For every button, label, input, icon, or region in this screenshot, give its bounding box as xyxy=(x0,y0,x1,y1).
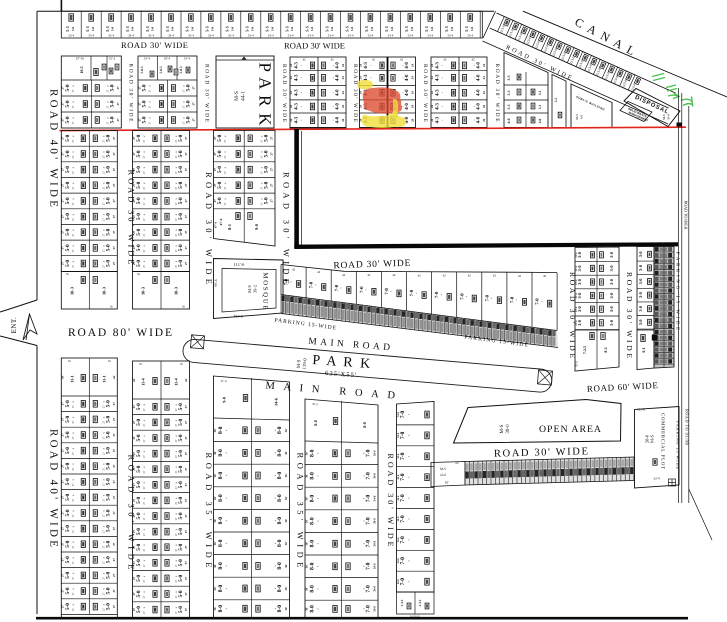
svg-text:5-0: 5-0 xyxy=(136,559,142,566)
svg-text:33-4: 33-4 xyxy=(208,34,214,38)
svg-text:5-0.5: 5-0.5 xyxy=(140,66,144,73)
svg-text:27: 27 xyxy=(184,498,188,502)
svg-text:5-0: 5-0 xyxy=(106,213,112,220)
svg-text:33-4: 33-4 xyxy=(188,34,194,38)
svg-text:8-0: 8-0 xyxy=(218,585,224,593)
svg-text:7-2.5: 7-2.5 xyxy=(582,346,587,354)
svg-text:27: 27 xyxy=(112,464,116,468)
svg-text:42: 42 xyxy=(418,273,422,277)
svg-text:42: 42 xyxy=(372,58,376,62)
svg-text:34-6: 34-6 xyxy=(373,518,377,524)
svg-text:4-0: 4-0 xyxy=(507,118,511,123)
svg-text:4-3: 4-3 xyxy=(294,103,300,110)
svg-text:7-0: 7-0 xyxy=(400,494,406,502)
svg-text:5-0: 5-0 xyxy=(106,150,112,157)
svg-text:5-0: 5-0 xyxy=(136,481,142,488)
svg-text:M-S: M-S xyxy=(575,114,579,120)
svg-text:5-0: 5-0 xyxy=(106,134,112,141)
svg-text:5-0: 5-0 xyxy=(106,478,112,485)
svg-text:57'-5: 57'-5 xyxy=(576,361,579,367)
svg-text:4-3: 4-3 xyxy=(435,103,441,110)
svg-text:47'-6: 47'-6 xyxy=(214,221,218,228)
svg-text:4-3: 4-3 xyxy=(294,74,300,81)
svg-text:27: 27 xyxy=(132,420,136,424)
svg-text:5-0: 5-0 xyxy=(263,134,269,141)
svg-text:M-S: M-S xyxy=(247,285,252,293)
svg-text:3-0: 3-0 xyxy=(638,291,643,298)
svg-text:5-0: 5-0 xyxy=(136,465,142,472)
svg-text:34-6: 34-6 xyxy=(373,563,377,569)
svg-text:24: 24 xyxy=(410,105,414,109)
svg-text:27: 27 xyxy=(192,102,196,106)
svg-text:3-3: 3-3 xyxy=(507,90,511,95)
svg-text:27: 27 xyxy=(61,449,65,453)
svg-text:36': 36' xyxy=(213,428,217,432)
svg-text:3-0: 3-0 xyxy=(609,292,614,299)
svg-text:27: 27 xyxy=(192,86,196,90)
svg-text:5-0: 5-0 xyxy=(65,603,71,610)
svg-text:27: 27 xyxy=(61,199,65,203)
svg-text:4-0: 4-0 xyxy=(475,74,481,81)
svg-text:27: 27 xyxy=(61,102,65,106)
svg-text:36': 36' xyxy=(305,496,309,500)
svg-text:5-0: 5-0 xyxy=(65,400,71,407)
svg-text:27: 27 xyxy=(132,530,136,534)
svg-text:27: 27 xyxy=(61,527,65,531)
svg-text:7-0: 7-0 xyxy=(366,472,372,480)
svg-text:5-0: 5-0 xyxy=(65,509,71,516)
svg-text:5-0: 5-0 xyxy=(110,100,116,107)
svg-text:ROAD 30' WIDE: ROAD 30' WIDE xyxy=(422,64,428,123)
svg-text:8-0: 8-0 xyxy=(309,472,315,480)
svg-text:27: 27 xyxy=(116,86,120,90)
svg-text:27: 27 xyxy=(270,152,274,156)
svg-text:32'-2: 32'-2 xyxy=(109,57,116,61)
svg-text:34-6: 34-6 xyxy=(397,495,400,501)
svg-text:3-0: 3-0 xyxy=(638,319,643,326)
svg-text:27: 27 xyxy=(61,433,65,437)
svg-text:5-0: 5-0 xyxy=(65,260,71,267)
svg-text:5-0: 5-0 xyxy=(136,528,142,535)
svg-text:42: 42 xyxy=(331,58,335,62)
svg-text:27: 27 xyxy=(112,605,116,609)
svg-text:27: 27 xyxy=(184,467,188,471)
svg-text:4-0: 4-0 xyxy=(334,116,340,123)
svg-text:5-0: 5-0 xyxy=(106,509,112,516)
svg-text:7-0: 7-0 xyxy=(366,449,372,457)
svg-text:24: 24 xyxy=(289,105,293,109)
svg-text:5-0: 5-0 xyxy=(263,197,269,204)
svg-text:5-0: 5-0 xyxy=(136,497,142,504)
svg-text:5-0: 5-0 xyxy=(178,213,184,220)
svg-text:5-0: 5-0 xyxy=(65,228,71,235)
svg-text:42: 42 xyxy=(317,270,321,274)
svg-text:5-0: 5-0 xyxy=(178,606,184,613)
svg-text:5-0: 5-0 xyxy=(91,26,95,31)
svg-text:5-0: 5-0 xyxy=(136,512,142,519)
svg-text:ROAD TO 91/9R: ROAD TO 91/9R xyxy=(685,409,690,445)
svg-text:27: 27 xyxy=(116,118,120,122)
svg-text:8-0: 8-0 xyxy=(218,449,224,457)
svg-text:9-0: 9-0 xyxy=(254,223,259,230)
svg-text:27: 27 xyxy=(132,514,136,518)
svg-text:ENT.: ENT. xyxy=(10,317,18,334)
svg-text:24: 24 xyxy=(430,91,434,95)
svg-text:4-0: 4-0 xyxy=(404,103,410,110)
svg-text:42: 42 xyxy=(303,58,307,62)
svg-text:24: 24 xyxy=(341,76,345,80)
svg-text:27: 27 xyxy=(132,561,136,565)
svg-text:36': 36' xyxy=(213,473,217,477)
svg-text:7-0: 7-0 xyxy=(400,452,406,460)
svg-text:M-S: M-S xyxy=(499,424,505,433)
svg-text:34-6: 34-6 xyxy=(373,606,377,612)
svg-text:28-0: 28-0 xyxy=(645,434,650,443)
svg-text:3-0: 3-0 xyxy=(609,319,614,326)
svg-text:34-6: 34-6 xyxy=(397,453,400,459)
svg-text:8-0: 8-0 xyxy=(277,426,283,434)
svg-text:45'-5: 45'-5 xyxy=(312,402,319,406)
svg-text:10-3: 10-3 xyxy=(69,286,74,295)
svg-text:5-5: 5-5 xyxy=(165,26,170,32)
svg-text:4-0: 4-0 xyxy=(404,74,410,81)
svg-text:27: 27 xyxy=(270,199,274,203)
svg-text:5-0: 5-0 xyxy=(106,525,112,532)
svg-text:34-6: 34-6 xyxy=(373,473,377,479)
svg-text:5-0: 5-0 xyxy=(65,431,71,438)
svg-text:ROAD 40' WIDE: ROAD 40' WIDE xyxy=(48,89,60,207)
svg-text:M-S: M-S xyxy=(662,114,666,120)
svg-text:5-0: 5-0 xyxy=(106,244,112,251)
svg-text:5-5: 5-5 xyxy=(65,26,70,32)
svg-text:24: 24 xyxy=(341,63,345,67)
svg-text:8-0: 8-0 xyxy=(277,449,283,457)
svg-text:5-0: 5-0 xyxy=(65,447,71,454)
svg-text:27: 27 xyxy=(61,230,65,234)
svg-text:27: 27 xyxy=(132,483,136,487)
svg-text:36': 36' xyxy=(213,586,217,590)
svg-text:36': 36' xyxy=(305,519,309,523)
svg-text:5-0: 5-0 xyxy=(65,572,71,579)
svg-text:5-0: 5-0 xyxy=(410,26,414,31)
svg-text:34-6: 34-6 xyxy=(397,558,400,564)
svg-text:23'-6: 23'-6 xyxy=(575,265,578,271)
svg-text:5-0: 5-0 xyxy=(65,494,71,501)
svg-text:5-0: 5-0 xyxy=(71,26,75,31)
svg-text:27: 27 xyxy=(132,592,136,596)
svg-text:7-0: 7-0 xyxy=(366,605,372,613)
svg-text:3-0: 3-0 xyxy=(609,278,614,285)
svg-text:4-0: 4-0 xyxy=(404,89,410,96)
svg-text:27: 27 xyxy=(112,589,116,593)
svg-text:4-0: 4-0 xyxy=(334,74,340,81)
svg-text:5-0: 5-0 xyxy=(136,228,142,235)
svg-text:101'-6: 101'-6 xyxy=(233,314,243,318)
svg-text:67'-10: 67'-10 xyxy=(76,57,84,61)
svg-text:111'-6: 111'-6 xyxy=(234,262,246,267)
svg-text:27: 27 xyxy=(61,495,65,499)
svg-text:5-5: 5-5 xyxy=(384,26,389,32)
svg-text:42: 42 xyxy=(367,273,371,277)
svg-text:27: 27 xyxy=(184,215,188,219)
svg-text:7-0: 7-0 xyxy=(366,517,372,525)
svg-text:5-0: 5-0 xyxy=(106,181,112,188)
svg-text:33-4: 33-4 xyxy=(268,34,274,38)
svg-text:62'-0: 62'-0 xyxy=(654,476,661,480)
svg-text:5-0: 5-0 xyxy=(263,150,269,157)
svg-text:4-3: 4-3 xyxy=(435,62,441,69)
svg-text:5-3.5: 5-3.5 xyxy=(418,599,422,606)
svg-text:8-0: 8-0 xyxy=(309,605,315,613)
svg-text:27: 27 xyxy=(61,183,65,187)
svg-text:24: 24 xyxy=(341,91,345,95)
svg-text:24: 24 xyxy=(289,118,293,122)
svg-text:5-0: 5-0 xyxy=(65,84,71,91)
svg-text:27: 27 xyxy=(184,608,188,612)
svg-text:36': 36' xyxy=(305,564,309,568)
svg-text:27: 27 xyxy=(61,511,65,515)
svg-text:27: 27 xyxy=(213,136,217,140)
svg-text:27: 27 xyxy=(61,86,65,90)
svg-text:3-0: 3-0 xyxy=(638,278,643,285)
svg-text:27: 27 xyxy=(184,405,188,409)
svg-text:27: 27 xyxy=(184,183,188,187)
svg-text:10-3: 10-3 xyxy=(174,286,179,295)
svg-text:10-3: 10-3 xyxy=(101,286,106,295)
svg-text:27: 27 xyxy=(132,246,136,250)
svg-text:5-0: 5-0 xyxy=(178,419,184,426)
svg-text:33-4: 33-4 xyxy=(427,34,433,38)
svg-text:27: 27 xyxy=(184,452,188,456)
svg-text:4-3: 4-3 xyxy=(294,89,300,96)
svg-text:24: 24 xyxy=(482,91,486,95)
svg-text:8-0: 8-0 xyxy=(309,562,315,570)
svg-text:27: 27 xyxy=(184,136,188,140)
svg-text:42: 42 xyxy=(493,274,497,278)
svg-text:27: 27 xyxy=(112,542,116,546)
svg-text:4-0: 4-0 xyxy=(334,89,340,96)
svg-text:5-0: 5-0 xyxy=(106,556,112,563)
svg-text:60': 60' xyxy=(185,378,188,382)
svg-text:5-0: 5-0 xyxy=(178,260,184,267)
svg-text:5-0: 5-0 xyxy=(171,26,175,31)
svg-text:5-0: 5-0 xyxy=(370,26,374,31)
svg-text:27: 27 xyxy=(112,511,116,515)
svg-text:ROAD 30' WIDE: ROAD 30' WIDE xyxy=(281,64,287,123)
svg-text:5-0: 5-0 xyxy=(290,26,294,31)
svg-text:5-0: 5-0 xyxy=(106,572,112,579)
svg-text:24: 24 xyxy=(359,91,363,95)
svg-text:27: 27 xyxy=(61,168,65,172)
svg-text:34-6: 34-6 xyxy=(373,450,377,456)
svg-text:5-0: 5-0 xyxy=(136,590,142,597)
svg-text:24: 24 xyxy=(289,76,293,80)
svg-text:11-1: 11-1 xyxy=(69,375,74,382)
svg-text:5-0: 5-0 xyxy=(350,26,354,31)
svg-text:5-0: 5-0 xyxy=(178,134,184,141)
svg-text:5-0: 5-0 xyxy=(178,244,184,251)
svg-text:27: 27 xyxy=(184,592,188,596)
svg-text:ROAD 30' WIDE: ROAD 30' WIDE xyxy=(121,40,188,50)
svg-text:27: 27 xyxy=(132,230,136,234)
svg-text:24: 24 xyxy=(430,63,434,67)
svg-text:5-0: 5-0 xyxy=(151,26,155,31)
svg-text:7-0: 7-0 xyxy=(400,431,406,439)
svg-text:27: 27 xyxy=(112,417,116,421)
svg-text:5-0: 5-0 xyxy=(178,403,184,410)
svg-text:5-0: 5-0 xyxy=(136,450,142,457)
svg-text:42: 42 xyxy=(400,58,404,62)
svg-text:4-3: 4-3 xyxy=(363,62,369,69)
svg-text:5-0: 5-0 xyxy=(178,228,184,235)
svg-text:60': 60' xyxy=(113,375,116,379)
svg-text:42: 42 xyxy=(472,58,476,62)
svg-text:3-0: 3-0 xyxy=(609,305,614,312)
svg-text:27: 27 xyxy=(61,417,65,421)
svg-text:33-4: 33-4 xyxy=(407,34,413,38)
svg-text:5-0: 5-0 xyxy=(65,213,71,220)
svg-text:ROAD 30' WIDE: ROAD 30' WIDE xyxy=(128,64,134,123)
svg-text:5-0: 5-0 xyxy=(178,481,184,488)
svg-text:34-6: 34-6 xyxy=(397,516,400,522)
svg-text:5-0: 5-0 xyxy=(390,26,394,31)
svg-text:5-5: 5-5 xyxy=(324,26,329,32)
svg-text:42: 42 xyxy=(468,274,472,278)
svg-text:24: 24 xyxy=(289,91,293,95)
svg-text:4-3: 4-3 xyxy=(435,89,441,96)
svg-text:5-0: 5-0 xyxy=(178,497,184,504)
svg-text:5-0: 5-0 xyxy=(430,26,434,31)
svg-text:8-0: 8-0 xyxy=(277,585,283,593)
svg-text:27: 27 xyxy=(213,152,217,156)
svg-text:5-0: 5-0 xyxy=(106,540,112,547)
svg-text:5-0: 5-0 xyxy=(110,84,116,91)
svg-text:5-0: 5-0 xyxy=(65,416,71,423)
svg-text:ROAD 40' WIDE: ROAD 40' WIDE xyxy=(48,429,60,547)
svg-text:33-4: 33-4 xyxy=(288,34,294,38)
svg-text:36': 36' xyxy=(284,473,288,477)
svg-text:4-3: 4-3 xyxy=(294,62,300,69)
svg-text:5-5: 5-5 xyxy=(554,97,558,102)
svg-text:5-0: 5-0 xyxy=(136,434,142,441)
svg-text:5-0: 5-0 xyxy=(136,403,142,410)
svg-text:5-0: 5-0 xyxy=(230,26,234,31)
svg-text:27: 27 xyxy=(112,168,116,172)
svg-text:8-0: 8-0 xyxy=(218,494,224,502)
svg-text:42: 42 xyxy=(443,273,447,277)
svg-text:5-0: 5-0 xyxy=(217,134,223,141)
svg-text:10-0: 10-0 xyxy=(667,114,671,120)
svg-text:8-0: 8-0 xyxy=(362,422,367,428)
svg-text:27: 27 xyxy=(132,152,136,156)
svg-text:5-0: 5-0 xyxy=(65,462,71,469)
svg-text:27: 27 xyxy=(61,573,65,577)
svg-text:9-1: 9-1 xyxy=(641,347,646,352)
svg-text:99'-6: 99'-6 xyxy=(214,279,218,286)
svg-text:24: 24 xyxy=(430,118,434,122)
svg-text:27: 27 xyxy=(132,436,136,440)
svg-text:5-0: 5-0 xyxy=(136,575,142,582)
svg-text:5-0: 5-0 xyxy=(131,26,135,31)
svg-text:7-0: 7-0 xyxy=(400,578,406,586)
svg-text:OPEN AREA: OPEN AREA xyxy=(539,424,601,435)
svg-text:8-0: 8-0 xyxy=(277,472,283,480)
svg-text:3-3: 3-3 xyxy=(538,90,542,95)
svg-text:PARKING 15 WIDE: PARKING 15 WIDE xyxy=(676,421,681,469)
svg-text:27: 27 xyxy=(112,495,116,499)
svg-text:27: 27 xyxy=(270,168,274,172)
svg-text:5-0.5: 5-0.5 xyxy=(179,66,183,73)
svg-text:27: 27 xyxy=(184,545,188,549)
svg-text:36': 36' xyxy=(213,607,217,611)
svg-text:23'-6: 23'-6 xyxy=(575,306,578,312)
svg-text:5-0: 5-0 xyxy=(178,197,184,204)
svg-text:5-0: 5-0 xyxy=(65,100,71,107)
svg-text:8-0: 8-0 xyxy=(309,449,315,457)
svg-text:27: 27 xyxy=(270,136,274,140)
svg-text:27: 27 xyxy=(61,402,65,406)
svg-text:33-4: 33-4 xyxy=(308,34,314,38)
svg-text:36': 36' xyxy=(284,586,288,590)
svg-text:8-0: 8-0 xyxy=(313,420,318,426)
svg-text:24: 24 xyxy=(359,63,363,67)
svg-text:22-0: 22-0 xyxy=(440,473,447,477)
svg-text:8-0: 8-0 xyxy=(218,539,224,547)
svg-text:5-5: 5-5 xyxy=(364,26,369,32)
svg-text:8-0: 8-0 xyxy=(218,426,224,434)
svg-text:27: 27 xyxy=(184,436,188,440)
svg-text:27: 27 xyxy=(61,605,65,609)
svg-text:3-3: 3-3 xyxy=(507,104,511,109)
svg-text:42: 42 xyxy=(444,58,448,62)
svg-text:27: 27 xyxy=(132,498,136,502)
svg-text:33-4: 33-4 xyxy=(128,34,134,38)
svg-text:27: 27 xyxy=(184,576,188,580)
svg-text:8-0: 8-0 xyxy=(218,517,224,525)
svg-text:36': 36' xyxy=(305,607,309,611)
svg-text:4-0: 4-0 xyxy=(475,116,481,123)
svg-text:24: 24 xyxy=(359,76,363,80)
svg-text:24: 24 xyxy=(430,105,434,109)
svg-text:5-0: 5-0 xyxy=(142,84,148,91)
svg-text:5-0: 5-0 xyxy=(263,166,269,173)
svg-text:27: 27 xyxy=(213,199,217,203)
svg-text:5-0: 5-0 xyxy=(106,416,112,423)
svg-text:27: 27 xyxy=(184,168,188,172)
svg-text:27: 27 xyxy=(184,483,188,487)
svg-text:33-4: 33-4 xyxy=(168,34,174,38)
svg-text:47'-6: 47'-6 xyxy=(219,218,223,225)
svg-text:27: 27 xyxy=(137,102,141,106)
svg-text:24: 24 xyxy=(341,118,345,122)
svg-text:5-5: 5-5 xyxy=(265,26,270,32)
svg-text:36': 36' xyxy=(284,496,288,500)
svg-text:24: 24 xyxy=(482,105,486,109)
svg-text:5-0: 5-0 xyxy=(106,228,112,235)
svg-text:11-4: 11-4 xyxy=(174,377,179,385)
svg-text:22: 22 xyxy=(455,461,459,465)
svg-text:24: 24 xyxy=(410,63,414,67)
svg-text:27: 27 xyxy=(112,152,116,156)
svg-text:5-0: 5-0 xyxy=(106,447,112,454)
svg-text:4-0: 4-0 xyxy=(538,118,542,123)
svg-text:34-6: 34-6 xyxy=(373,586,377,592)
svg-text:5-0: 5-0 xyxy=(450,26,454,31)
svg-text:27: 27 xyxy=(61,215,65,219)
svg-text:4-0: 4-0 xyxy=(334,103,340,110)
svg-text:9-8: 9-8 xyxy=(222,397,227,403)
svg-text:34-6: 34-6 xyxy=(397,579,400,585)
